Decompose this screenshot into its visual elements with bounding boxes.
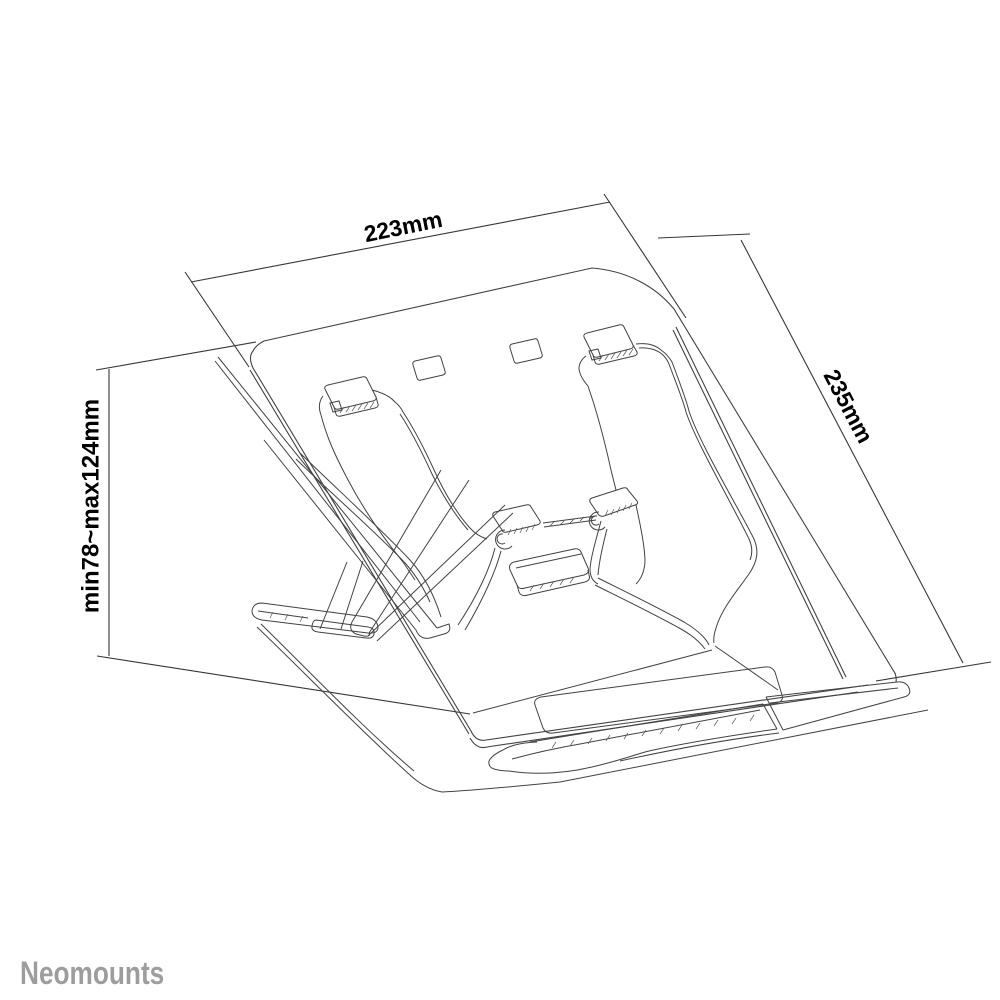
svg-text:min78~max124mm: min78~max124mm [78, 399, 105, 613]
svg-text:235mm: 235mm [819, 365, 879, 447]
svg-text:Neomounts: Neomounts [20, 957, 164, 992]
svg-text:223mm: 223mm [362, 206, 445, 247]
